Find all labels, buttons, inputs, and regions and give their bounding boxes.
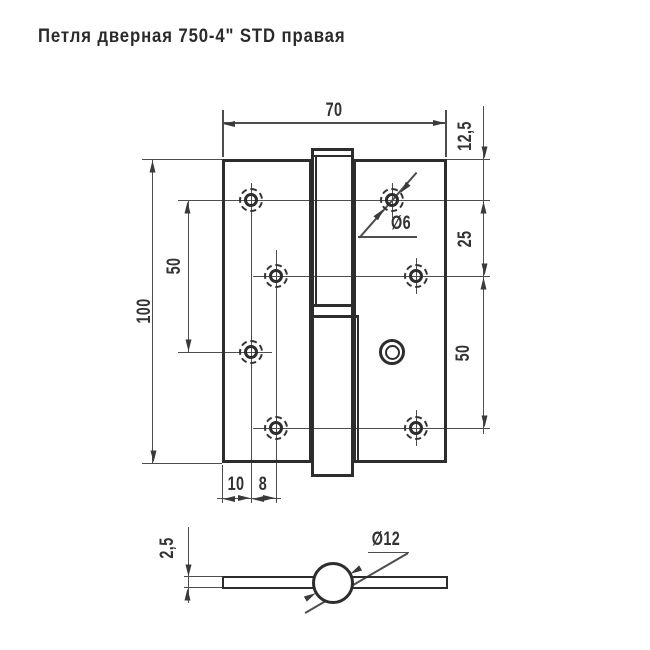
knuckle-barrel <box>312 562 354 604</box>
arrowhead <box>304 590 317 601</box>
technical-drawing-canvas: Петля дверная 750-4" STD правая <box>0 0 650 650</box>
dimension-label-thickness: 2,5 <box>157 537 179 558</box>
arrowhead <box>185 589 191 601</box>
arrowhead <box>349 565 362 576</box>
leader-shelf-knuckle <box>368 552 409 554</box>
right-leaf-edge <box>340 576 448 589</box>
dimension-label-knuckle-diameter: Ø12 <box>372 529 400 551</box>
arrowhead <box>186 564 192 576</box>
side-view: 2,5 Ø12 <box>0 0 650 650</box>
